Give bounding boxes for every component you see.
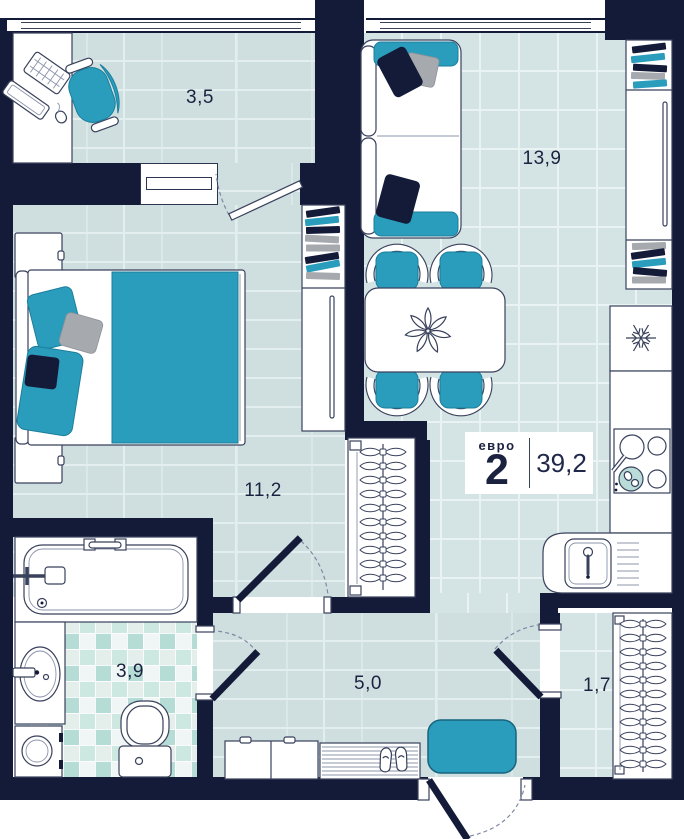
door-bathroom	[196, 626, 260, 701]
door-loggia	[216, 174, 302, 220]
door-balcony	[493, 624, 561, 699]
living-shelf	[626, 40, 672, 289]
toilet	[119, 701, 171, 777]
unit-type: евро 2	[465, 436, 529, 490]
bed	[15, 233, 245, 483]
wardrobe-hangers	[348, 438, 415, 597]
drying-rack	[613, 613, 672, 779]
unit-info-badge: евро 2 39,2	[465, 432, 593, 494]
floor-plan: 3,5 13,9 11,2 3,9 5,0 1,7 евро 2 39,2	[0, 0, 684, 839]
room-area-label-hallway: 5,0	[354, 673, 382, 695]
door-mat	[428, 720, 516, 773]
desk	[2, 33, 72, 163]
bedroom-shelf	[302, 205, 345, 431]
bathtub	[13, 537, 197, 622]
door-bedroom	[233, 535, 331, 613]
room-area-label-bedroom: 11,2	[244, 480, 282, 502]
dining-set	[365, 244, 505, 416]
room-area-label-living: 13,9	[523, 148, 562, 170]
stove	[613, 429, 670, 493]
room-area-label-balcony: 1,7	[583, 675, 611, 697]
shoe-bench	[320, 743, 420, 779]
door-entrance	[418, 777, 532, 839]
refrigerator	[610, 306, 672, 371]
balcony-window-sill	[558, 608, 672, 613]
hall-cabinet	[225, 737, 318, 779]
room-area-label-loggia: 3,5	[186, 87, 214, 109]
room-area-label-bathroom: 3,9	[116, 661, 144, 683]
furniture-layer	[0, 0, 684, 839]
unit-rooms-count: 2	[465, 452, 529, 490]
washbasin	[13, 622, 65, 724]
washing-machine	[15, 726, 63, 777]
unit-total-area: 39,2	[530, 448, 593, 479]
sofa	[361, 40, 461, 238]
